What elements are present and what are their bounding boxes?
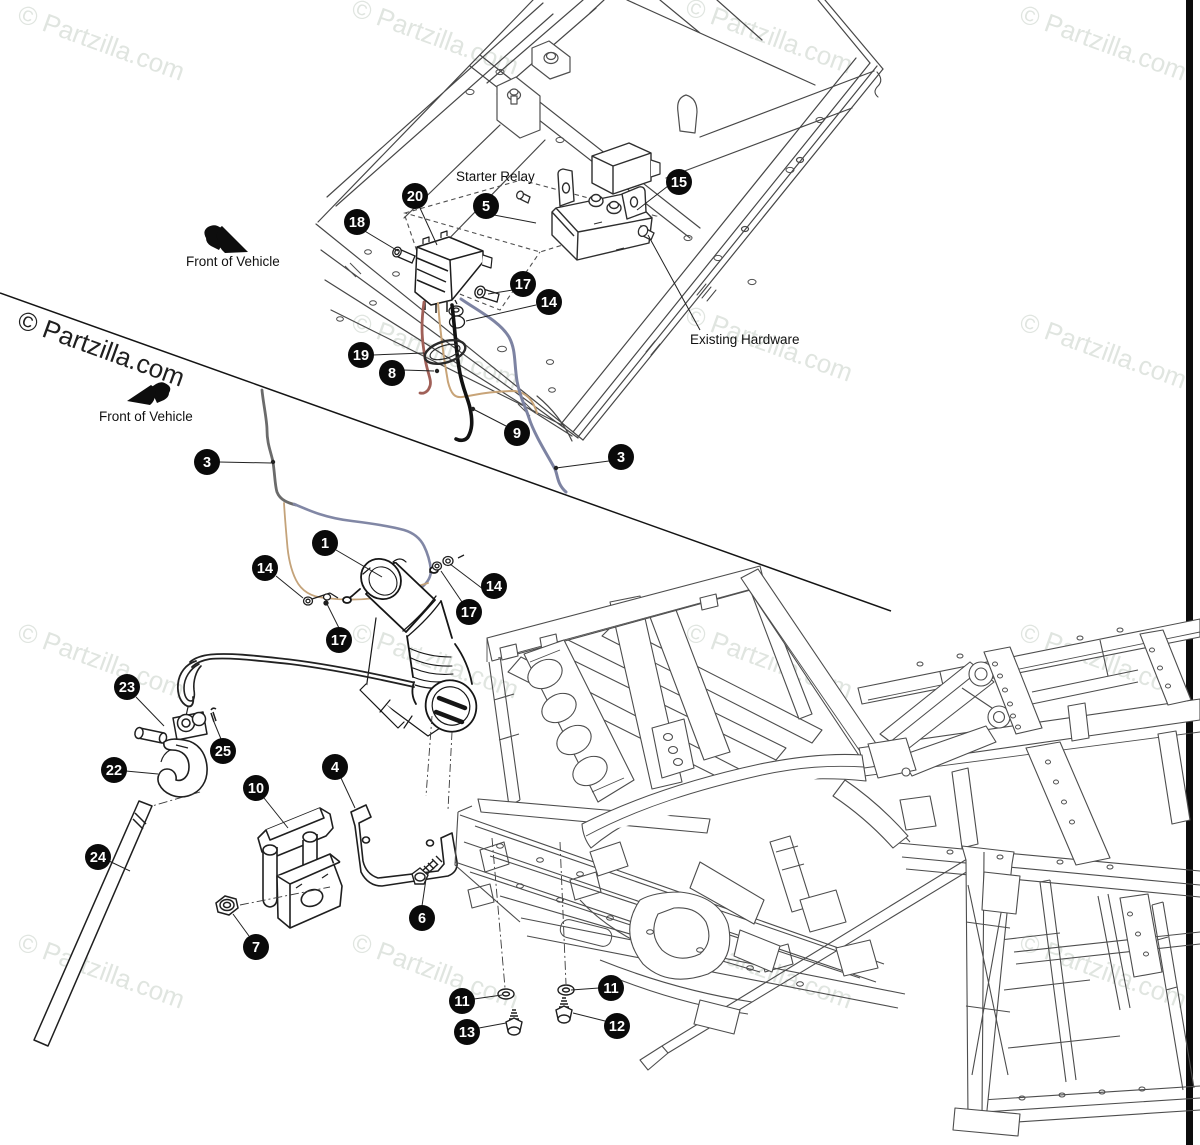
- svg-text:12: 12: [609, 1019, 625, 1035]
- svg-text:24: 24: [90, 850, 106, 866]
- svg-text:10: 10: [248, 781, 264, 797]
- svg-text:5: 5: [482, 199, 490, 215]
- svg-text:19: 19: [353, 348, 369, 364]
- svg-text:20: 20: [407, 189, 423, 205]
- svg-text:25: 25: [215, 744, 231, 760]
- svg-text:11: 11: [454, 994, 469, 1010]
- svg-text:14: 14: [486, 579, 502, 595]
- svg-text:3: 3: [203, 455, 211, 471]
- svg-text:7: 7: [252, 940, 260, 956]
- svg-text:9: 9: [513, 426, 521, 442]
- svg-text:1: 1: [321, 536, 329, 552]
- svg-text:14: 14: [541, 295, 557, 311]
- svg-text:4: 4: [331, 760, 339, 776]
- svg-text:17: 17: [461, 605, 477, 621]
- svg-text:15: 15: [671, 175, 687, 191]
- svg-text:14: 14: [257, 561, 273, 577]
- svg-text:Starter Relay: Starter Relay: [456, 169, 535, 184]
- svg-text:23: 23: [119, 680, 135, 696]
- svg-text:3: 3: [617, 450, 625, 466]
- svg-text:Existing Hardware: Existing Hardware: [690, 332, 800, 347]
- svg-text:22: 22: [106, 763, 122, 779]
- svg-text:8: 8: [388, 366, 396, 382]
- svg-text:18: 18: [349, 215, 365, 231]
- svg-text:13: 13: [459, 1025, 475, 1041]
- svg-text:17: 17: [331, 633, 347, 649]
- svg-text:Front of Vehicle: Front of Vehicle: [186, 254, 280, 269]
- svg-text:6: 6: [418, 911, 426, 927]
- svg-text:11: 11: [603, 981, 618, 997]
- svg-text:17: 17: [515, 277, 531, 293]
- svg-text:Front of Vehicle: Front of Vehicle: [99, 409, 193, 424]
